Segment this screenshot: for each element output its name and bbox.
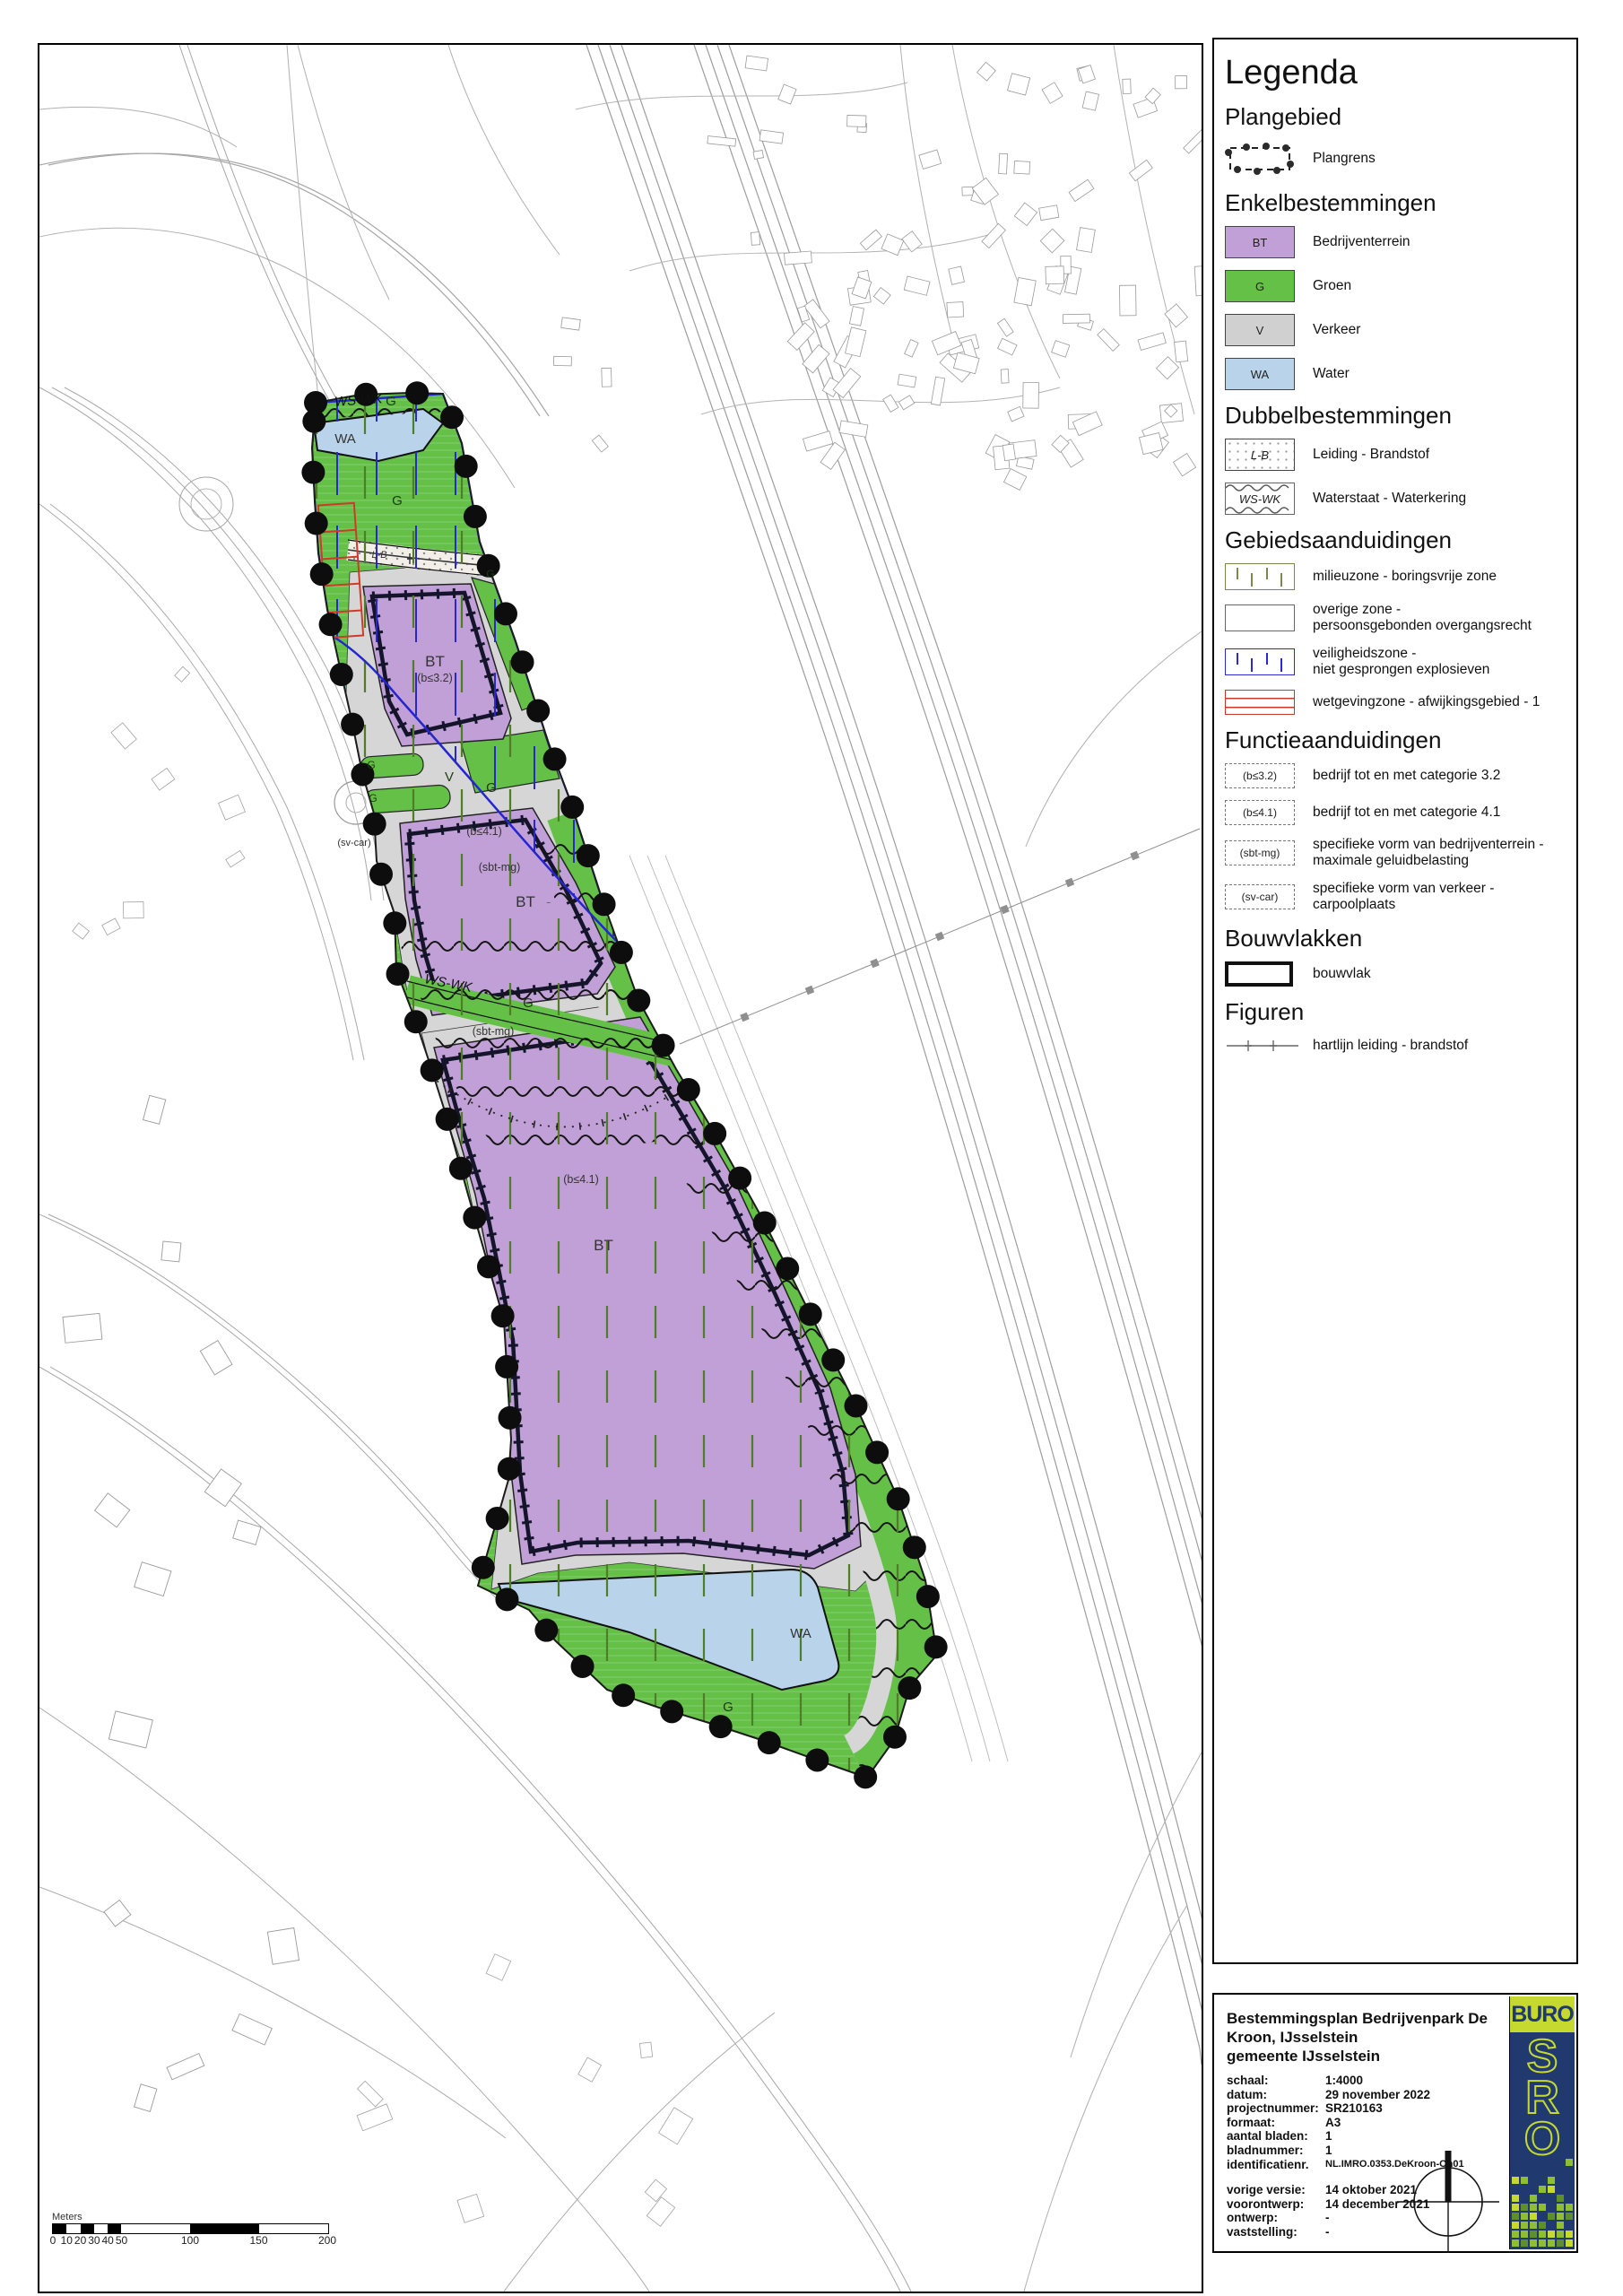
field-label: formaat: bbox=[1227, 2116, 1325, 2130]
scale-tick: 200 bbox=[318, 2234, 336, 2247]
scale-bar-ticks: 01020304050100150200 bbox=[52, 2234, 348, 2247]
legend-item-label: specifieke vorm van verkeer - carpoolpla… bbox=[1313, 881, 1494, 913]
field-value: 1:4000 bbox=[1325, 2074, 1514, 2088]
legend-item-label: Waterstaat - Waterkering bbox=[1313, 491, 1466, 507]
svg-text:(sbt-mg): (sbt-mg) bbox=[479, 861, 521, 874]
legend-item: wetgevingzone - afwijkingsgebied - 1 bbox=[1225, 690, 1566, 715]
legend-swatch-zone bbox=[1225, 648, 1295, 675]
legend-swatch-G: G bbox=[1225, 270, 1295, 302]
legend-panel: Legenda PlangebiedPlangrensEnkelbestemmi… bbox=[1212, 38, 1578, 1964]
logo-sro-letters: SRO bbox=[1510, 2032, 1575, 2156]
titleblock-field: schaal:1:4000 bbox=[1227, 2074, 1514, 2088]
zoning-map: WS-WKGWAGL-BGBT(b≤3.2)(sv-car)GGVG(b≤4.1… bbox=[39, 45, 1202, 2292]
field-label: projectnummer: bbox=[1227, 2101, 1325, 2116]
svg-text:(b≤3.2): (b≤3.2) bbox=[417, 672, 453, 684]
svg-text:WA: WA bbox=[790, 1626, 811, 1641]
logo-buro-text: BURO bbox=[1510, 1996, 1575, 2032]
svg-text:(sbt-mg): (sbt-mg) bbox=[473, 1025, 515, 1038]
scale-tick: 150 bbox=[249, 2234, 267, 2247]
legend-swatch-V: V bbox=[1225, 314, 1295, 346]
legend-item: (sbt-mg)specifieke vorm van bedrijventer… bbox=[1225, 837, 1566, 869]
titleblock-field: formaat:A3 bbox=[1227, 2116, 1514, 2130]
svg-text:G: G bbox=[723, 1700, 733, 1715]
legend-item: Plangrens bbox=[1225, 140, 1566, 178]
svg-text:G: G bbox=[367, 759, 375, 771]
legend-item-label: specifieke vorm van bedrijventerrein - m… bbox=[1313, 837, 1544, 869]
legend-item: hartlijn leiding - brandstof bbox=[1225, 1035, 1566, 1057]
legend-item-label: hartlijn leiding - brandstof bbox=[1313, 1038, 1468, 1054]
field-label: datum: bbox=[1227, 2088, 1325, 2102]
legend-swatch-bouwvlak bbox=[1225, 961, 1293, 987]
scale-unit-label: Meters bbox=[52, 2212, 348, 2222]
legend-item: (b≤4.1)bedrijf tot en met categorie 4.1 bbox=[1225, 800, 1566, 825]
buro-sro-logo: BURO SRO bbox=[1509, 1996, 1575, 2249]
legend-item-label: Bedrijventerrein bbox=[1313, 234, 1410, 250]
legend-heading-plangebied: Plangebied bbox=[1225, 103, 1566, 131]
field-value: SR210163 bbox=[1325, 2101, 1514, 2116]
legend-swatch-(b≤3.2): (b≤3.2) bbox=[1225, 763, 1295, 788]
plan-title: Bestemmingsplan Bedrijvenpark De Kroon, … bbox=[1227, 2009, 1496, 2066]
legend-heading-bouwvlakken: Bouwvlakken bbox=[1225, 925, 1566, 952]
legend-swatch-L-B: L-B bbox=[1225, 439, 1295, 471]
north-crosshair-icon bbox=[1390, 2144, 1506, 2260]
legend-item-label: overige zone - persoonsgebonden overgang… bbox=[1313, 602, 1532, 634]
scale-bar-blocks bbox=[52, 2223, 329, 2234]
scale-tick: 50 bbox=[116, 2234, 127, 2247]
svg-text:(b≤4.1): (b≤4.1) bbox=[563, 1173, 599, 1186]
legend-item: L-BLeiding - Brandstof bbox=[1225, 439, 1566, 471]
field-value: 1 bbox=[1325, 2129, 1514, 2144]
svg-text:V: V bbox=[445, 770, 454, 785]
logo-pixel-grid bbox=[1511, 2158, 1574, 2248]
legend-item: BTBedrijventerrein bbox=[1225, 226, 1566, 258]
plan-area: WS-WKGWAGL-BGBT(b≤3.2)(sv-car)GGVG(b≤4.1… bbox=[301, 381, 947, 1788]
scale-tick: 0 bbox=[50, 2234, 56, 2247]
titleblock-field: aantal bladen:1 bbox=[1227, 2129, 1514, 2144]
svg-text:BT: BT bbox=[594, 1237, 613, 1254]
map-canvas: WS-WKGWAGL-BGBT(b≤3.2)(sv-car)GGVG(b≤4.1… bbox=[38, 43, 1203, 2293]
legend-item-label: Verkeer bbox=[1313, 322, 1360, 338]
legend-item: WAWater bbox=[1225, 358, 1566, 390]
legend-heading-dubbelbestemmingen: Dubbelbestemmingen bbox=[1225, 402, 1566, 430]
svg-text:(sv-car): (sv-car) bbox=[337, 838, 370, 848]
titleblock-field: projectnummer:SR210163 bbox=[1227, 2101, 1514, 2116]
field-value: A3 bbox=[1325, 2116, 1514, 2130]
legend-item: WS-WKWaterstaat - Waterkering bbox=[1225, 483, 1566, 515]
svg-text:G: G bbox=[386, 394, 396, 409]
legend-swatch-(sbt-mg): (sbt-mg) bbox=[1225, 840, 1295, 865]
svg-text:BT: BT bbox=[516, 893, 535, 910]
legend-item: GGroen bbox=[1225, 270, 1566, 302]
field-value: 29 november 2022 bbox=[1325, 2088, 1514, 2102]
legend-item: overige zone - persoonsgebonden overgang… bbox=[1225, 602, 1566, 634]
svg-text:G: G bbox=[486, 568, 494, 580]
legend-item: (sv-car)specifieke vorm van verkeer - ca… bbox=[1225, 881, 1566, 913]
field-label: vaststelling: bbox=[1227, 2225, 1325, 2239]
scale-tick: 30 bbox=[88, 2234, 100, 2247]
title-block: Bestemmingsplan Bedrijvenpark De Kroon, … bbox=[1212, 1993, 1578, 2253]
legend-swatch-WA: WA bbox=[1225, 358, 1295, 390]
svg-text:G: G bbox=[486, 780, 497, 796]
legend-swatch-zone bbox=[1225, 604, 1295, 631]
legend-item: veiligheidszone - niet gesprongen explos… bbox=[1225, 646, 1566, 678]
titleblock-field: datum:29 november 2022 bbox=[1227, 2088, 1514, 2102]
legend-item-label: veiligheidszone - niet gesprongen explos… bbox=[1313, 646, 1489, 678]
svg-text:G: G bbox=[523, 996, 534, 1011]
scale-tick: 40 bbox=[102, 2234, 114, 2247]
legend-swatch-zone bbox=[1225, 690, 1295, 715]
legend-item-label: wetgevingzone - afwijkingsgebied - 1 bbox=[1313, 694, 1540, 710]
legend-item-label: bedrijf tot en met categorie 4.1 bbox=[1313, 804, 1500, 821]
svg-text:BT: BT bbox=[425, 653, 445, 670]
scale-bar: Meters 01020304050100150200 bbox=[52, 2212, 348, 2247]
legend-item: (b≤3.2)bedrijf tot en met categorie 3.2 bbox=[1225, 763, 1566, 788]
legend-swatch-(sv-car): (sv-car) bbox=[1225, 884, 1295, 909]
legend-item-label: bouwvlak bbox=[1313, 966, 1371, 982]
field-label: aantal bladen: bbox=[1227, 2129, 1325, 2144]
legend-item-label: Groen bbox=[1313, 278, 1351, 294]
legend-heading-functieaanduidingen: Functieaanduidingen bbox=[1225, 726, 1566, 754]
field-label: vorige versie: bbox=[1227, 2183, 1325, 2197]
hartlijn-icon bbox=[1225, 1035, 1300, 1057]
legend-swatch-WS-WK: WS-WK bbox=[1225, 483, 1295, 515]
scale-tick: 20 bbox=[74, 2234, 86, 2247]
field-label: ontwerp: bbox=[1227, 2211, 1325, 2225]
legend-heading-figuren: Figuren bbox=[1225, 998, 1566, 1026]
field-label: bladnummer: bbox=[1227, 2144, 1325, 2158]
svg-text:(b≤4.1): (b≤4.1) bbox=[466, 825, 502, 838]
legend-swatch-BT: BT bbox=[1225, 226, 1295, 258]
svg-text:O: O bbox=[1524, 2113, 1560, 2156]
legend-item-label: milieuzone - boringsvrije zone bbox=[1313, 569, 1497, 585]
legend-item-label: Plangrens bbox=[1313, 151, 1376, 167]
svg-text:L-B: L-B bbox=[371, 550, 386, 561]
scale-tick: 10 bbox=[61, 2234, 73, 2247]
legend-item: milieuzone - boringsvrije zone bbox=[1225, 563, 1566, 590]
legend-item: bouwvlak bbox=[1225, 961, 1566, 987]
field-label: identificatienr. bbox=[1227, 2158, 1325, 2172]
svg-text:WA: WA bbox=[334, 431, 356, 447]
legend-heading-gebiedsaanduidingen: Gebiedsaanduidingen bbox=[1225, 526, 1566, 554]
plangrens-icon bbox=[1225, 140, 1300, 178]
legend-item-label: Leiding - Brandstof bbox=[1313, 447, 1429, 463]
field-label: voorontwerp: bbox=[1227, 2197, 1325, 2212]
scale-tick: 100 bbox=[181, 2234, 199, 2247]
legend-title: Legenda bbox=[1225, 54, 1566, 92]
field-label: schaal: bbox=[1227, 2074, 1325, 2088]
legend-item-label: bedrijf tot en met categorie 3.2 bbox=[1313, 768, 1500, 784]
legend-swatch-(b≤4.1): (b≤4.1) bbox=[1225, 800, 1295, 825]
legend-heading-enkelbestemmingen: Enkelbestemmingen bbox=[1225, 189, 1566, 217]
svg-text:G: G bbox=[369, 792, 377, 804]
legend-swatch-zone bbox=[1225, 563, 1295, 590]
legend-item: VVerkeer bbox=[1225, 314, 1566, 346]
svg-text:G: G bbox=[392, 493, 403, 509]
legend-item-label: Water bbox=[1313, 366, 1350, 382]
